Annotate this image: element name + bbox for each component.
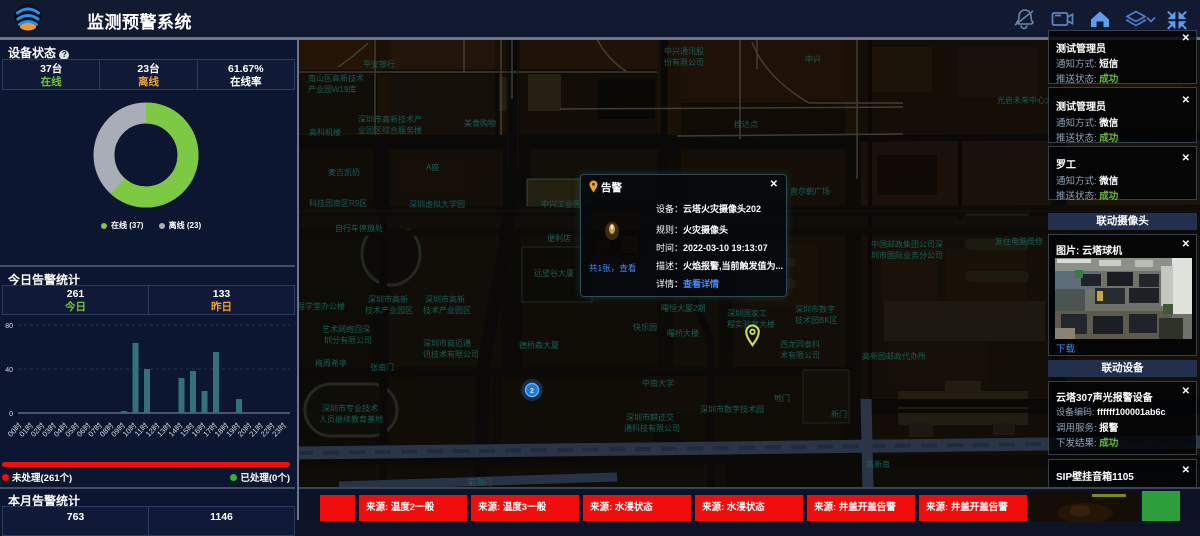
svg-text:地门: 地门: [774, 393, 790, 403]
svg-text:南山区高新技术: 南山区高新技术: [308, 73, 364, 83]
svg-text:技术产业园区: 技术产业园区: [365, 305, 413, 315]
svg-text:科技园南区R9区: 科技园南区R9区: [309, 198, 367, 208]
svg-text:高新园邮政代办所: 高新园邮政代办所: [862, 351, 926, 361]
svg-text:深圳市商迈通: 深圳市商迈通: [423, 338, 471, 348]
svg-text:圳分有限公司: 圳分有限公司: [324, 335, 372, 345]
svg-text:0: 0: [9, 411, 13, 418]
svg-text:直尔朝广场: 直尔朝广场: [790, 186, 830, 196]
svg-text:平安银行: 平安银行: [363, 59, 395, 69]
svg-text:搜达点: 搜达点: [734, 119, 758, 129]
svg-text:2: 2: [530, 388, 534, 395]
svg-text:深圳国家工: 深圳国家工: [727, 308, 767, 318]
svg-text:中南大学: 中南大学: [642, 378, 674, 388]
svg-text:深圳市高新: 深圳市高新: [368, 294, 408, 304]
svg-text:友住电脑维修: 友住电脑维修: [995, 236, 1043, 246]
svg-text:美食购物: 美食购物: [464, 118, 496, 128]
svg-text:艺术网络回深: 艺术网络回深: [322, 324, 370, 334]
svg-text:深圳市高新: 深圳市高新: [425, 294, 465, 304]
svg-text:前海门: 前海门: [468, 477, 492, 487]
svg-text:人员继续教育基地: 人员继续教育基地: [319, 414, 383, 424]
svg-text:曙桥大楼: 曙桥大楼: [667, 328, 699, 338]
svg-text:新门: 新门: [831, 409, 847, 419]
svg-text:深圳市专业技术: 深圳市专业技术: [322, 403, 378, 413]
svg-text:深圳市数字技术园: 深圳市数字技术园: [700, 404, 764, 414]
svg-text:高新南: 高新南: [866, 459, 890, 469]
svg-text:深圳市数字: 深圳市数字: [795, 304, 835, 314]
svg-text:梅周希亭: 梅周希亭: [315, 358, 347, 368]
svg-text:技术园BK区: 技术园BK区: [795, 315, 838, 325]
svg-text:产业园W19库: 产业园W19库: [308, 84, 356, 94]
svg-text:高科机楼: 高科机楼: [309, 127, 341, 137]
svg-text:中兴工业园: 中兴工业园: [541, 199, 581, 209]
svg-text:中兴通讯股: 中兴通讯股: [664, 46, 704, 56]
svg-text:深圳市麒迹交: 深圳市麒迹交: [626, 412, 674, 422]
svg-text:40: 40: [5, 367, 13, 374]
svg-text:技术产业园区: 技术产业园区: [423, 305, 471, 315]
svg-text:圳市国际业务分公司: 圳市国际业务分公司: [871, 250, 943, 260]
svg-text:深圳虚拟大学园: 深圳虚拟大学园: [409, 199, 465, 209]
svg-text:便利店: 便利店: [547, 233, 571, 243]
svg-text:张南门: 张南门: [370, 362, 394, 372]
svg-text:A座: A座: [426, 162, 439, 172]
svg-text:深圳市高新技术产: 深圳市高新技术产: [358, 114, 422, 124]
svg-text:术有限公司: 术有限公司: [780, 350, 820, 360]
svg-text:自行车停放处: 自行车停放处: [335, 223, 383, 233]
svg-text:德桥森大厦: 德桥森大厦: [519, 340, 559, 350]
svg-text:曙恒大厦2期: 曙恒大厦2期: [661, 303, 705, 313]
svg-text:快乐园: 快乐园: [633, 322, 657, 332]
svg-text:中兴: 中兴: [805, 54, 821, 64]
svg-text:80: 80: [5, 323, 13, 330]
svg-text:程实验室大楼: 程实验室大楼: [727, 319, 775, 329]
svg-text:远望谷大厦: 远望谷大厦: [534, 268, 574, 278]
svg-text:份有限公司: 份有限公司: [664, 57, 704, 67]
svg-text:程学堂办公楼: 程学堂办公楼: [299, 301, 345, 311]
svg-text:中国邮政集团公司深: 中国邮政集团公司深: [871, 239, 943, 249]
svg-text:业园区综合服务楼: 业园区综合服务楼: [358, 125, 422, 135]
svg-text:麦吉凯奶: 麦吉凯奶: [328, 167, 360, 177]
svg-text:讯技术有限公司: 讯技术有限公司: [423, 349, 479, 359]
svg-text:23时: 23时: [270, 420, 289, 439]
svg-text:通科技有限公司: 通科技有限公司: [624, 423, 680, 433]
svg-text:西龙同泰科: 西龙同泰科: [780, 339, 820, 349]
